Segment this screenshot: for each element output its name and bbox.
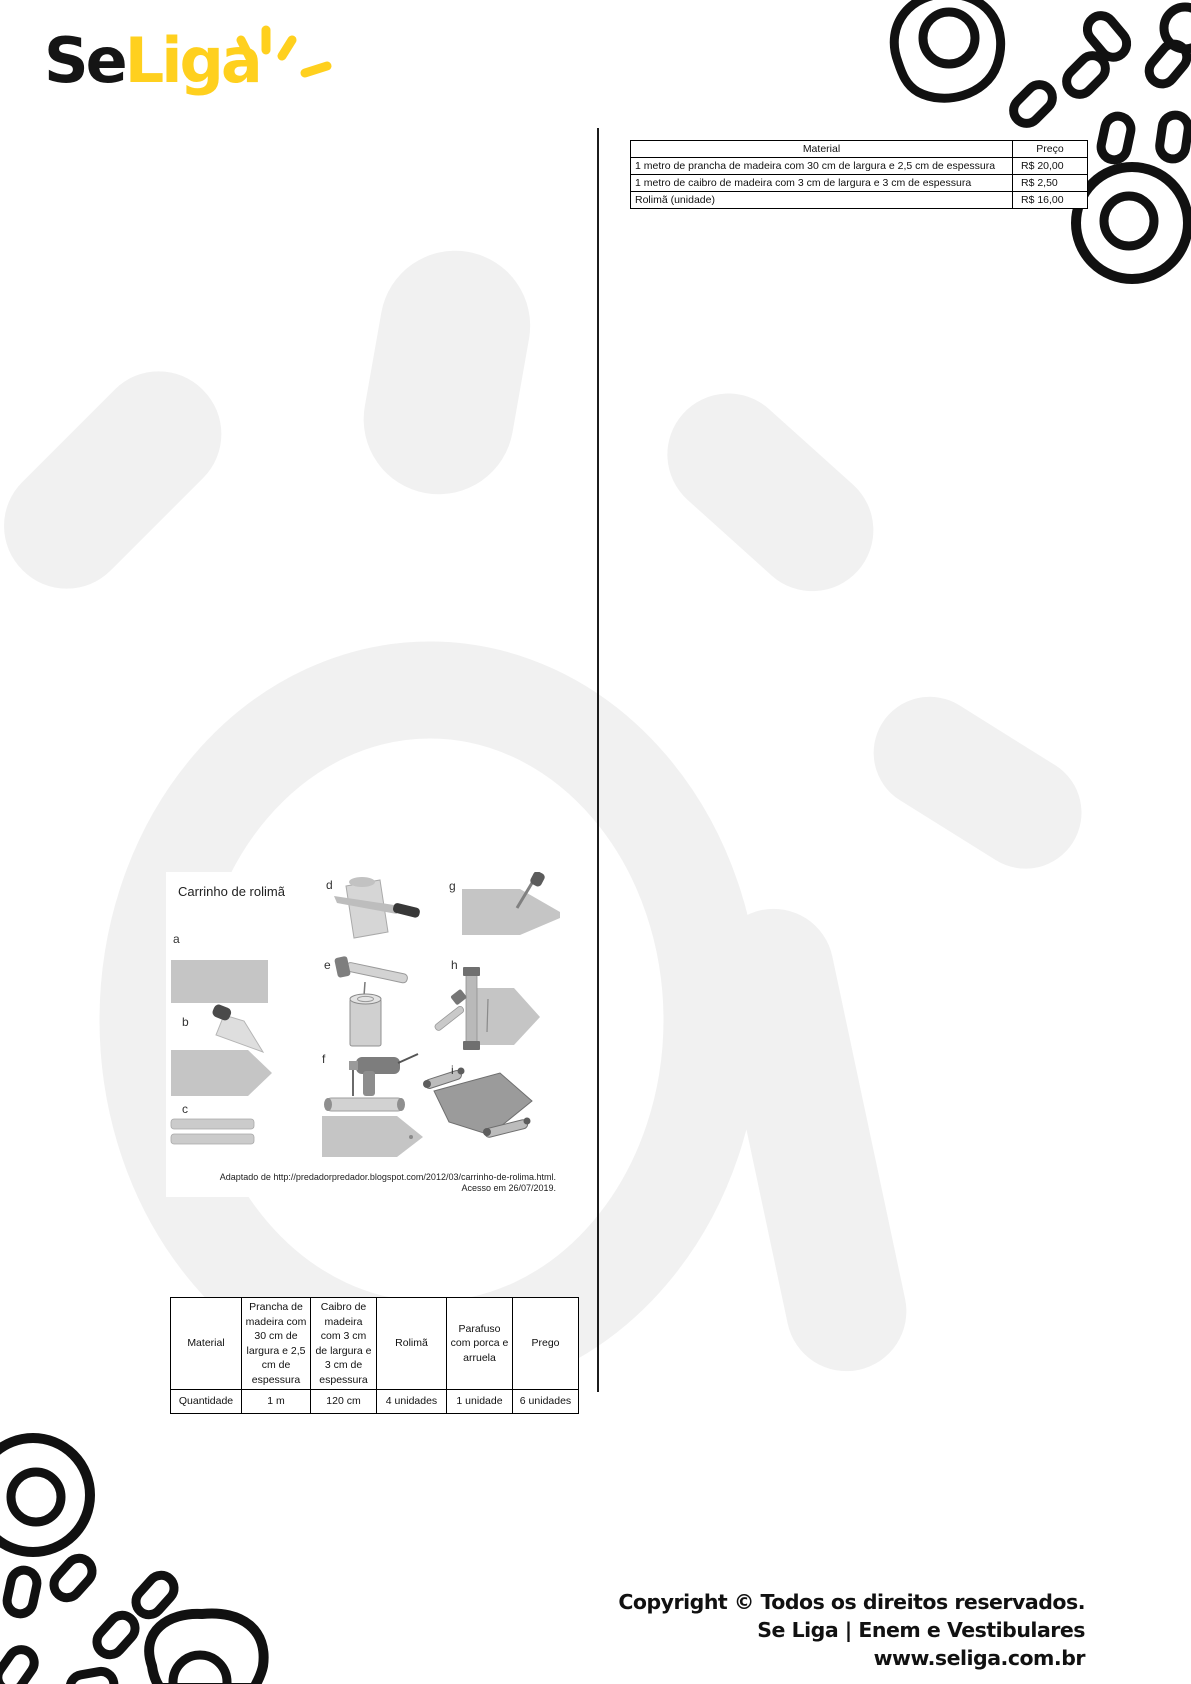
figure-source-line1: Adaptado de http://predadorpredador.blog… — [220, 1172, 556, 1183]
copyright-footer: Copyright © Todos os direitos reservados… — [618, 1588, 1085, 1672]
price-table: Material Preço 1 metro de prancha de mad… — [630, 140, 1088, 209]
materials-quantity-row: Quantidade 1 m 120 cm 4 unidades 1 unida… — [171, 1390, 579, 1414]
materials-col-prancha: Prancha de madeira com 30 cm de largura … — [242, 1298, 311, 1390]
figure-source-line2: Acesso em 26/07/2019. — [220, 1183, 556, 1194]
doodle-blob-inner-circle-icon — [923, 12, 975, 64]
footer-brand-line: Se Liga | Enem e Vestibulares — [618, 1616, 1085, 1644]
price-table-header-price: Preço — [1013, 141, 1088, 158]
illustration-c-strips — [171, 1119, 254, 1144]
figure-source: Adaptado de http://predadorpredador.blog… — [220, 1172, 556, 1194]
quantity-prancha: 1 m — [242, 1390, 311, 1414]
figure-label-g: g — [449, 879, 456, 893]
quantity-row-label: Quantidade — [171, 1390, 242, 1414]
carrinho-de-rolima-figure: Carrinho de rolimã a b c d e f g h i Ada… — [166, 872, 560, 1197]
materials-col-parafuso: Parafuso com porca e arruela — [447, 1298, 513, 1390]
illustration-d-jug-knife — [334, 877, 421, 938]
seliga-logo: SeLiga — [44, 24, 260, 97]
column-divider-line — [597, 128, 599, 1392]
quantity-parafuso: 1 unidade — [447, 1390, 513, 1414]
illustration-g-plank-tool — [462, 872, 560, 935]
price-table-header-row: Material Preço — [631, 141, 1088, 158]
price-row-material: 1 metro de caibro de madeira com 3 cm de… — [631, 175, 1013, 192]
figure-label-f: f — [322, 1052, 325, 1066]
price-table-row: 1 metro de caibro de madeira com 3 cm de… — [631, 175, 1088, 192]
footer-copyright-line: Copyright © Todos os direitos reservados… — [618, 1588, 1085, 1616]
figure-label-c: c — [182, 1102, 188, 1116]
price-table-header-material: Material — [631, 141, 1013, 158]
figure-label-b: b — [182, 1015, 189, 1029]
quantity-caibro: 120 cm — [311, 1390, 377, 1414]
price-row-material: Rolimã (unidade) — [631, 192, 1013, 209]
illustration-h-frame-hammer — [434, 967, 540, 1050]
price-row-material: 1 metro de prancha de madeira com 30 cm … — [631, 158, 1013, 175]
materials-row-label: Material — [171, 1298, 242, 1390]
doodle-donut-icon — [1076, 167, 1188, 279]
logo-sun-rays-icon — [233, 22, 343, 82]
materials-col-rolima: Rolimã — [377, 1298, 447, 1390]
quantity-prego: 6 unidades — [513, 1390, 579, 1414]
price-table-row: 1 metro de prancha de madeira com 30 cm … — [631, 158, 1088, 175]
figure-title: Carrinho de rolimã — [178, 884, 285, 899]
worksheet-page: SeLiga — [0, 0, 1191, 1684]
illustration-a-plank — [171, 960, 268, 1003]
materials-col-prego: Prego — [513, 1298, 579, 1390]
price-row-price: R$ 20,00 — [1013, 158, 1088, 175]
footer-url: www.seliga.com.br — [618, 1644, 1085, 1672]
logo-text-se: Se — [44, 24, 125, 97]
figure-label-a: a — [173, 932, 180, 946]
illustration-e-hammer-can — [334, 956, 408, 1046]
materials-col-caibro: Caibro de madeira com 3 cm de largura e … — [311, 1298, 377, 1390]
figure-label-i: i — [451, 1063, 454, 1077]
quantity-rolima: 4 unidades — [377, 1390, 447, 1414]
materials-table: Material Prancha de madeira com 30 cm de… — [170, 1297, 579, 1414]
figure-label-d: d — [326, 878, 333, 892]
price-row-price: R$ 2,50 — [1013, 175, 1088, 192]
illustration-i-finished-cart — [423, 1068, 532, 1139]
decorative-doodles-bottom-left — [0, 1424, 300, 1684]
price-table-row: Rolimã (unidade) R$ 16,00 — [631, 192, 1088, 209]
figure-label-h: h — [451, 958, 458, 972]
figure-illustrations — [166, 872, 560, 1197]
illustration-f-drill-tube-plank — [322, 1054, 423, 1157]
figure-label-e: e — [324, 958, 331, 972]
price-row-price: R$ 16,00 — [1013, 192, 1088, 209]
doodle-blob-icon — [149, 1613, 263, 1684]
materials-header-row: Material Prancha de madeira com 30 cm de… — [171, 1298, 579, 1390]
